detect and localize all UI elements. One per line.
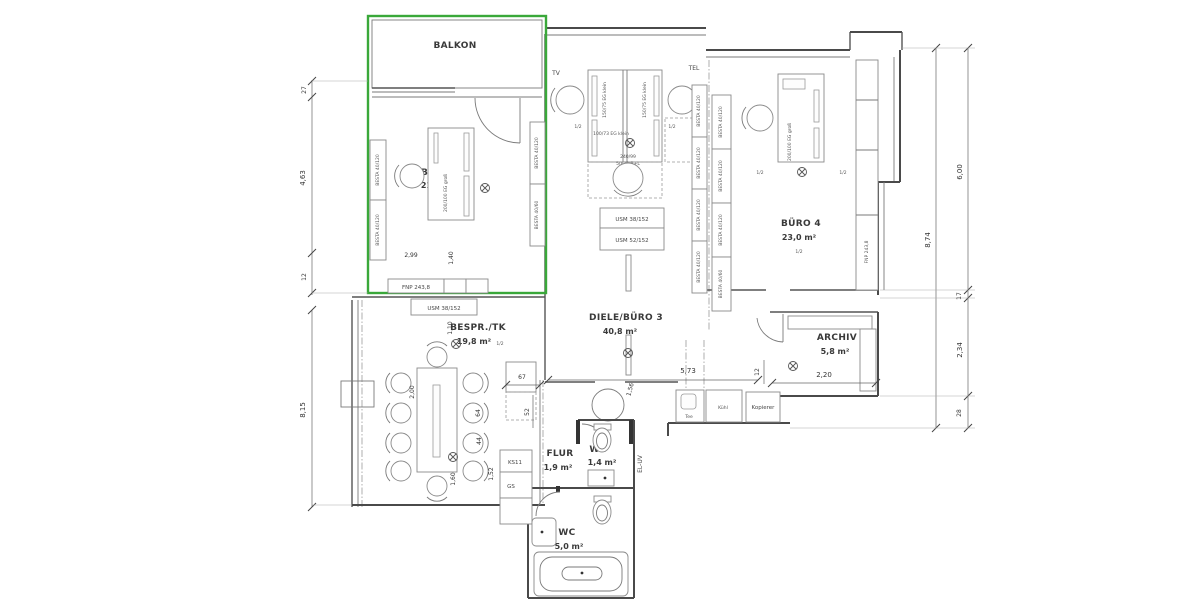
buero4-half-right: 1/2 bbox=[839, 170, 846, 176]
room-balkon: BALKON bbox=[433, 41, 476, 51]
bespr-half: 1/2 bbox=[496, 341, 503, 347]
ceiling-light-icon bbox=[789, 362, 798, 371]
desk-100-label: 100/73 EG klein bbox=[593, 131, 629, 137]
dim-44: 44 bbox=[476, 437, 483, 445]
dim-left-3: 8,15 bbox=[299, 402, 307, 418]
besta-label: BESTA 40/120 bbox=[696, 95, 702, 127]
usm-label: USM 38/152 bbox=[615, 217, 648, 223]
room-diele-area: 40,8 m² bbox=[603, 327, 638, 336]
desk-240-label: 240/99 bbox=[620, 154, 636, 160]
office-chair-icon bbox=[613, 163, 643, 193]
sanitary-fixtures: KS11 GS bbox=[500, 362, 628, 596]
floor-plan-page: BALKON BÜRO 2 21,0 m² BESPR./TK 19,8 m² … bbox=[0, 0, 1200, 600]
usm-label: USM 52/152 bbox=[615, 238, 648, 244]
fnp-label: FNP 243,8 bbox=[864, 240, 870, 263]
sink-icon bbox=[588, 470, 614, 486]
dim-299: 2,99 bbox=[404, 252, 418, 259]
besta-label: BESTA 40/120 bbox=[718, 106, 724, 138]
dim-220: 2,20 bbox=[816, 371, 832, 379]
besta-label: BESTA 40/120 bbox=[696, 199, 702, 231]
gs-label: GS bbox=[507, 484, 515, 490]
room-wc-klein-area: 1,4 m² bbox=[588, 458, 617, 467]
desk-label: 200/100 EG groß bbox=[443, 174, 449, 212]
dim-110: 1,10 bbox=[447, 321, 454, 335]
dim-right-total: 8,74 bbox=[924, 232, 932, 248]
dim-152: 1,52 bbox=[488, 467, 495, 481]
tel-label: TEL bbox=[688, 65, 700, 72]
usm-label: USM 38/152 bbox=[427, 306, 460, 312]
dim-right-3: 28 bbox=[956, 409, 963, 417]
dim-right-0: 6,00 bbox=[956, 164, 964, 180]
office-chair-icon bbox=[556, 86, 584, 114]
floor-plan-drawing: BALKON BÜRO 2 21,0 m² BESPR./TK 19,8 m² … bbox=[0, 0, 1200, 600]
fnp-label: FNP 243,8 bbox=[402, 285, 431, 291]
kopierer-label: Kopierer bbox=[752, 405, 776, 411]
room-buero4: BÜRO 4 bbox=[781, 218, 821, 229]
el-uv-label: EL-UV bbox=[637, 454, 644, 473]
kuehl-label: Kühl bbox=[718, 405, 728, 411]
buero4-half-left: 1/2 bbox=[756, 170, 763, 176]
dim-573: 5,73 bbox=[680, 367, 696, 375]
room-buero4-area: 23,0 m² bbox=[782, 233, 817, 242]
dim-160: 1,60 bbox=[450, 472, 457, 486]
room-archiv-area: 5,8 m² bbox=[821, 347, 850, 356]
besta-label: BESTA 40/120 bbox=[375, 214, 381, 246]
dim-left-1: 4,63 bbox=[299, 170, 307, 186]
dim-64: 64 bbox=[475, 409, 482, 417]
shelf-wall: BESTA 40/120 BESTA 40/120 BESTA 40/120 B… bbox=[692, 85, 731, 311]
room-bespr-area: 19,8 m² bbox=[457, 337, 492, 346]
besta-label: BESTA 40/120 bbox=[696, 251, 702, 283]
room-bespr: BESPR./TK bbox=[450, 323, 506, 333]
tee-label: Tee bbox=[684, 414, 693, 420]
room-wc-gross: WC bbox=[558, 528, 575, 538]
room-diele: DIELE/BÜRO 3 bbox=[589, 312, 663, 323]
buero4-furniture: 200/100 EG groß FNP 243,8 1/2 1/2 bbox=[742, 60, 878, 290]
besta-label: BESTA 40/120 bbox=[375, 154, 381, 186]
dim-52: 52 bbox=[524, 408, 531, 416]
dim-140: 1,40 bbox=[448, 251, 455, 265]
room-wc-gross-area: 5,0 m² bbox=[555, 542, 584, 551]
ceiling-light-icon bbox=[481, 184, 490, 193]
besta-label: BESTA 40/120 bbox=[718, 214, 724, 246]
besta-label: BESTA 40/60 bbox=[718, 270, 724, 299]
toilet-icon bbox=[593, 496, 611, 524]
buero4-half: 1/2 bbox=[795, 249, 802, 255]
room-flur-area: 1,9 m² bbox=[544, 463, 573, 472]
archiv-kitchen: Tee Kühl Kopierer bbox=[676, 316, 876, 422]
bathtub-icon bbox=[534, 552, 628, 596]
dim-right-2: 2,34 bbox=[956, 342, 964, 358]
besta-label: BESTA 40/120 bbox=[534, 137, 540, 169]
desk-label: 200/100 EG groß bbox=[787, 123, 793, 161]
dim-right-1: 17 bbox=[956, 292, 963, 300]
desk-label: 150/75 EG klein bbox=[642, 82, 648, 118]
besta-label: BESTA 40/60 bbox=[534, 201, 540, 230]
buero2-furniture: BESTA 40/120 BESTA 40/120 BESTA 40/120 B… bbox=[370, 122, 545, 293]
dim-left-2: 12 bbox=[301, 273, 308, 281]
sink-icon bbox=[532, 518, 556, 546]
dim-200: 2,00 bbox=[409, 385, 416, 399]
office-chair-icon bbox=[400, 164, 424, 188]
desk-label: 150/75 EG klein bbox=[602, 82, 608, 118]
diele-half-left: 1/2 bbox=[574, 124, 581, 130]
besta-label: BESTA 40/120 bbox=[696, 147, 702, 179]
room-flur: FLUR bbox=[546, 449, 573, 459]
dim-12: 12 bbox=[754, 368, 761, 376]
ceiling-light-icon bbox=[798, 168, 807, 177]
diele-half-right: 1/2 bbox=[668, 124, 675, 130]
dim-left-0: 27 bbox=[301, 86, 308, 94]
room-archiv: ARCHIV bbox=[817, 333, 857, 343]
tv-label: TV bbox=[551, 70, 561, 77]
toilet-icon bbox=[593, 424, 611, 452]
dim-156: 1,56 bbox=[625, 382, 635, 397]
dim-67: 67 bbox=[518, 374, 526, 381]
besta-label: BESTA 40/120 bbox=[718, 160, 724, 192]
office-chair-icon bbox=[747, 105, 773, 131]
ks11-label: KS11 bbox=[508, 460, 522, 466]
